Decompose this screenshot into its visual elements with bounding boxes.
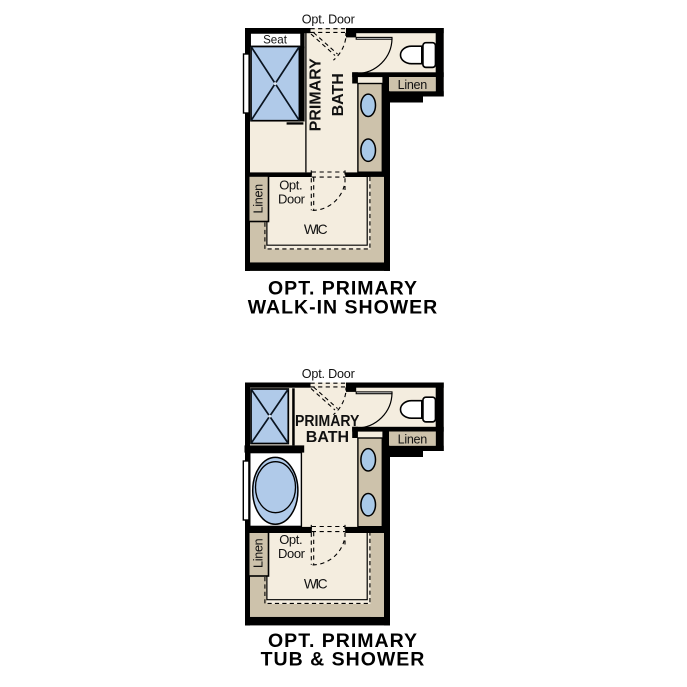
svg-text:BATH: BATH	[330, 73, 347, 116]
svg-text:BATH: BATH	[306, 429, 349, 446]
svg-text:PRIMARY: PRIMARY	[295, 412, 359, 430]
svg-text:Seat: Seat	[263, 34, 288, 47]
svg-text:PRIMARY: PRIMARY	[307, 58, 324, 132]
svg-text:TUB & SHOWER: TUB & SHOWER	[261, 649, 426, 671]
svg-text:WALK-IN SHOWER: WALK-IN SHOWER	[248, 296, 439, 318]
